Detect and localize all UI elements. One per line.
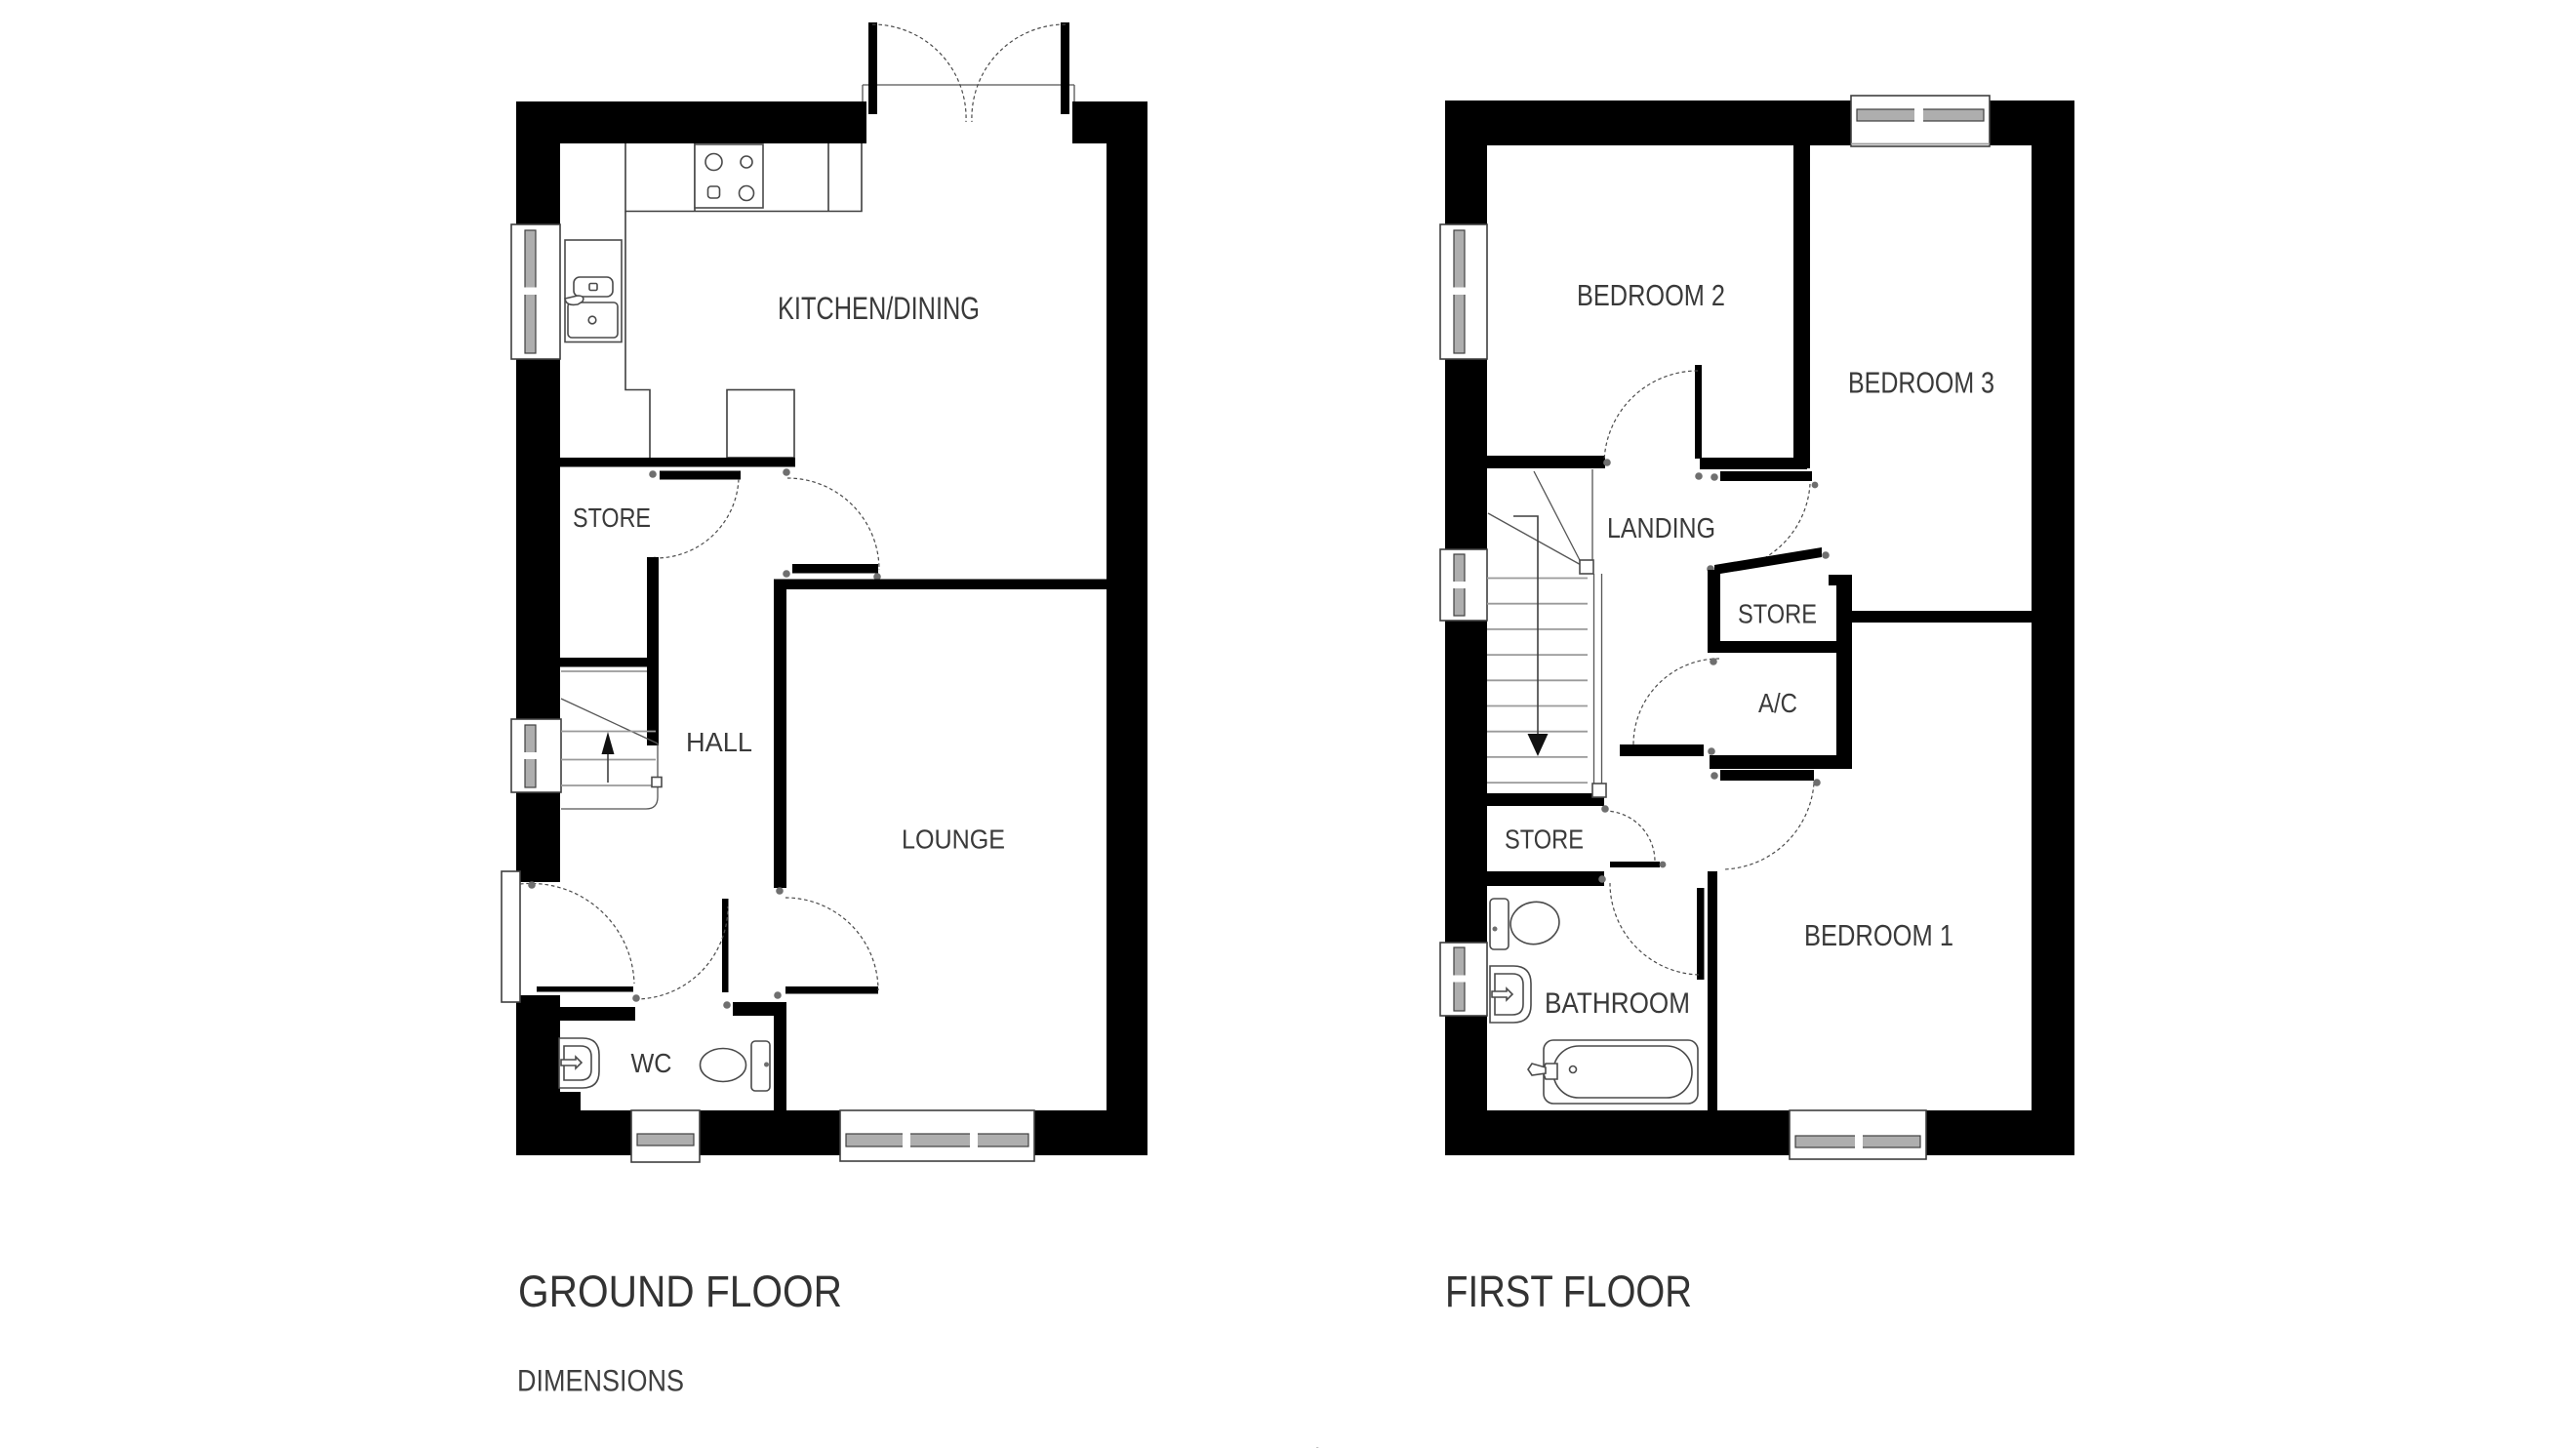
svg-text:STORE: STORE bbox=[1505, 825, 1584, 855]
svg-text:FIRST FLOOR: FIRST FLOOR bbox=[1445, 1267, 1692, 1316]
svg-text:BATHROOM: BATHROOM bbox=[1545, 987, 1690, 1020]
svg-text:BEDROOM 3: BEDROOM 3 bbox=[1848, 366, 1994, 400]
svg-text:HALL: HALL bbox=[686, 727, 752, 757]
svg-text:LANDING: LANDING bbox=[1607, 513, 1715, 544]
svg-text:GROUND FLOOR: GROUND FLOOR bbox=[518, 1267, 842, 1316]
svg-text:BEDROOM 2: BEDROOM 2 bbox=[1577, 278, 1725, 312]
svg-text:STORE: STORE bbox=[1738, 599, 1817, 629]
svg-text:LOUNGE 4.72m x 3.91m: LOUNGE 4.72m x 3.91m 15'6" x 12'10" KITC… bbox=[517, 1443, 1647, 1448]
svg-text:LOUNGE: LOUNGE bbox=[902, 825, 1005, 855]
svg-text:KITCHEN/DINING: KITCHEN/DINING bbox=[778, 291, 980, 326]
svg-text:WC: WC bbox=[631, 1048, 672, 1078]
svg-text:BEDROOM 1: BEDROOM 1 bbox=[1804, 918, 1953, 952]
svg-text:DIMENSIONS: DIMENSIONS bbox=[517, 1363, 684, 1398]
svg-text:STORE: STORE bbox=[573, 503, 651, 533]
svg-text:A/C: A/C bbox=[1758, 688, 1797, 718]
